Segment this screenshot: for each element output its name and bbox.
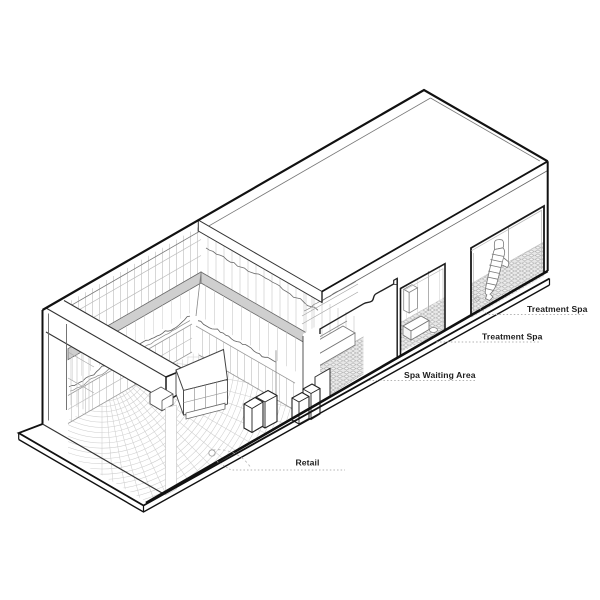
svg-text:Treatment Spa: Treatment Spa [527,304,588,314]
svg-text:Treatment Spa: Treatment Spa [482,332,543,342]
svg-text:Retail: Retail [296,458,320,468]
svg-text:Spa Waiting Area: Spa Waiting Area [404,370,476,380]
